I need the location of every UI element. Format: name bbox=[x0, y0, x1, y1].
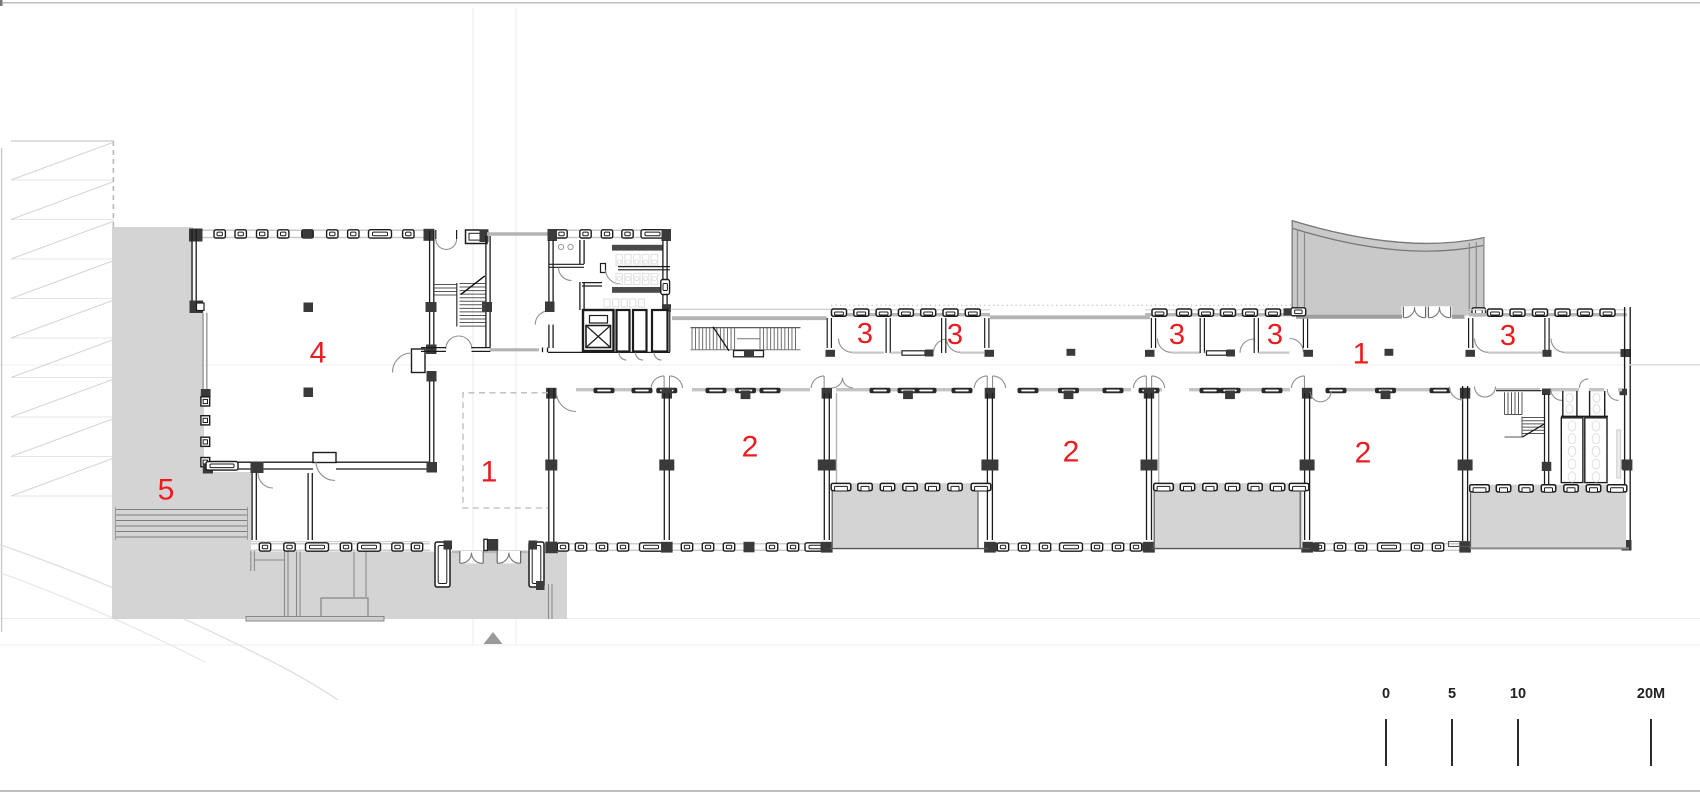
svg-text:3: 3 bbox=[857, 318, 873, 350]
svg-text:5: 5 bbox=[158, 474, 175, 507]
svg-text:1: 1 bbox=[1353, 338, 1370, 371]
svg-text:2: 2 bbox=[1063, 436, 1080, 469]
svg-text:3: 3 bbox=[1169, 319, 1185, 351]
svg-text:5: 5 bbox=[1448, 686, 1456, 702]
svg-text:2: 2 bbox=[1355, 437, 1372, 470]
svg-text:3: 3 bbox=[947, 319, 963, 351]
svg-text:0: 0 bbox=[1382, 686, 1390, 702]
svg-text:1: 1 bbox=[481, 456, 498, 489]
svg-text:10: 10 bbox=[1510, 686, 1526, 702]
svg-text:3: 3 bbox=[1500, 320, 1516, 352]
svg-text:3: 3 bbox=[1267, 319, 1283, 351]
svg-text:20M: 20M bbox=[1637, 686, 1665, 702]
svg-text:4: 4 bbox=[310, 337, 327, 370]
svg-text:2: 2 bbox=[742, 431, 759, 464]
